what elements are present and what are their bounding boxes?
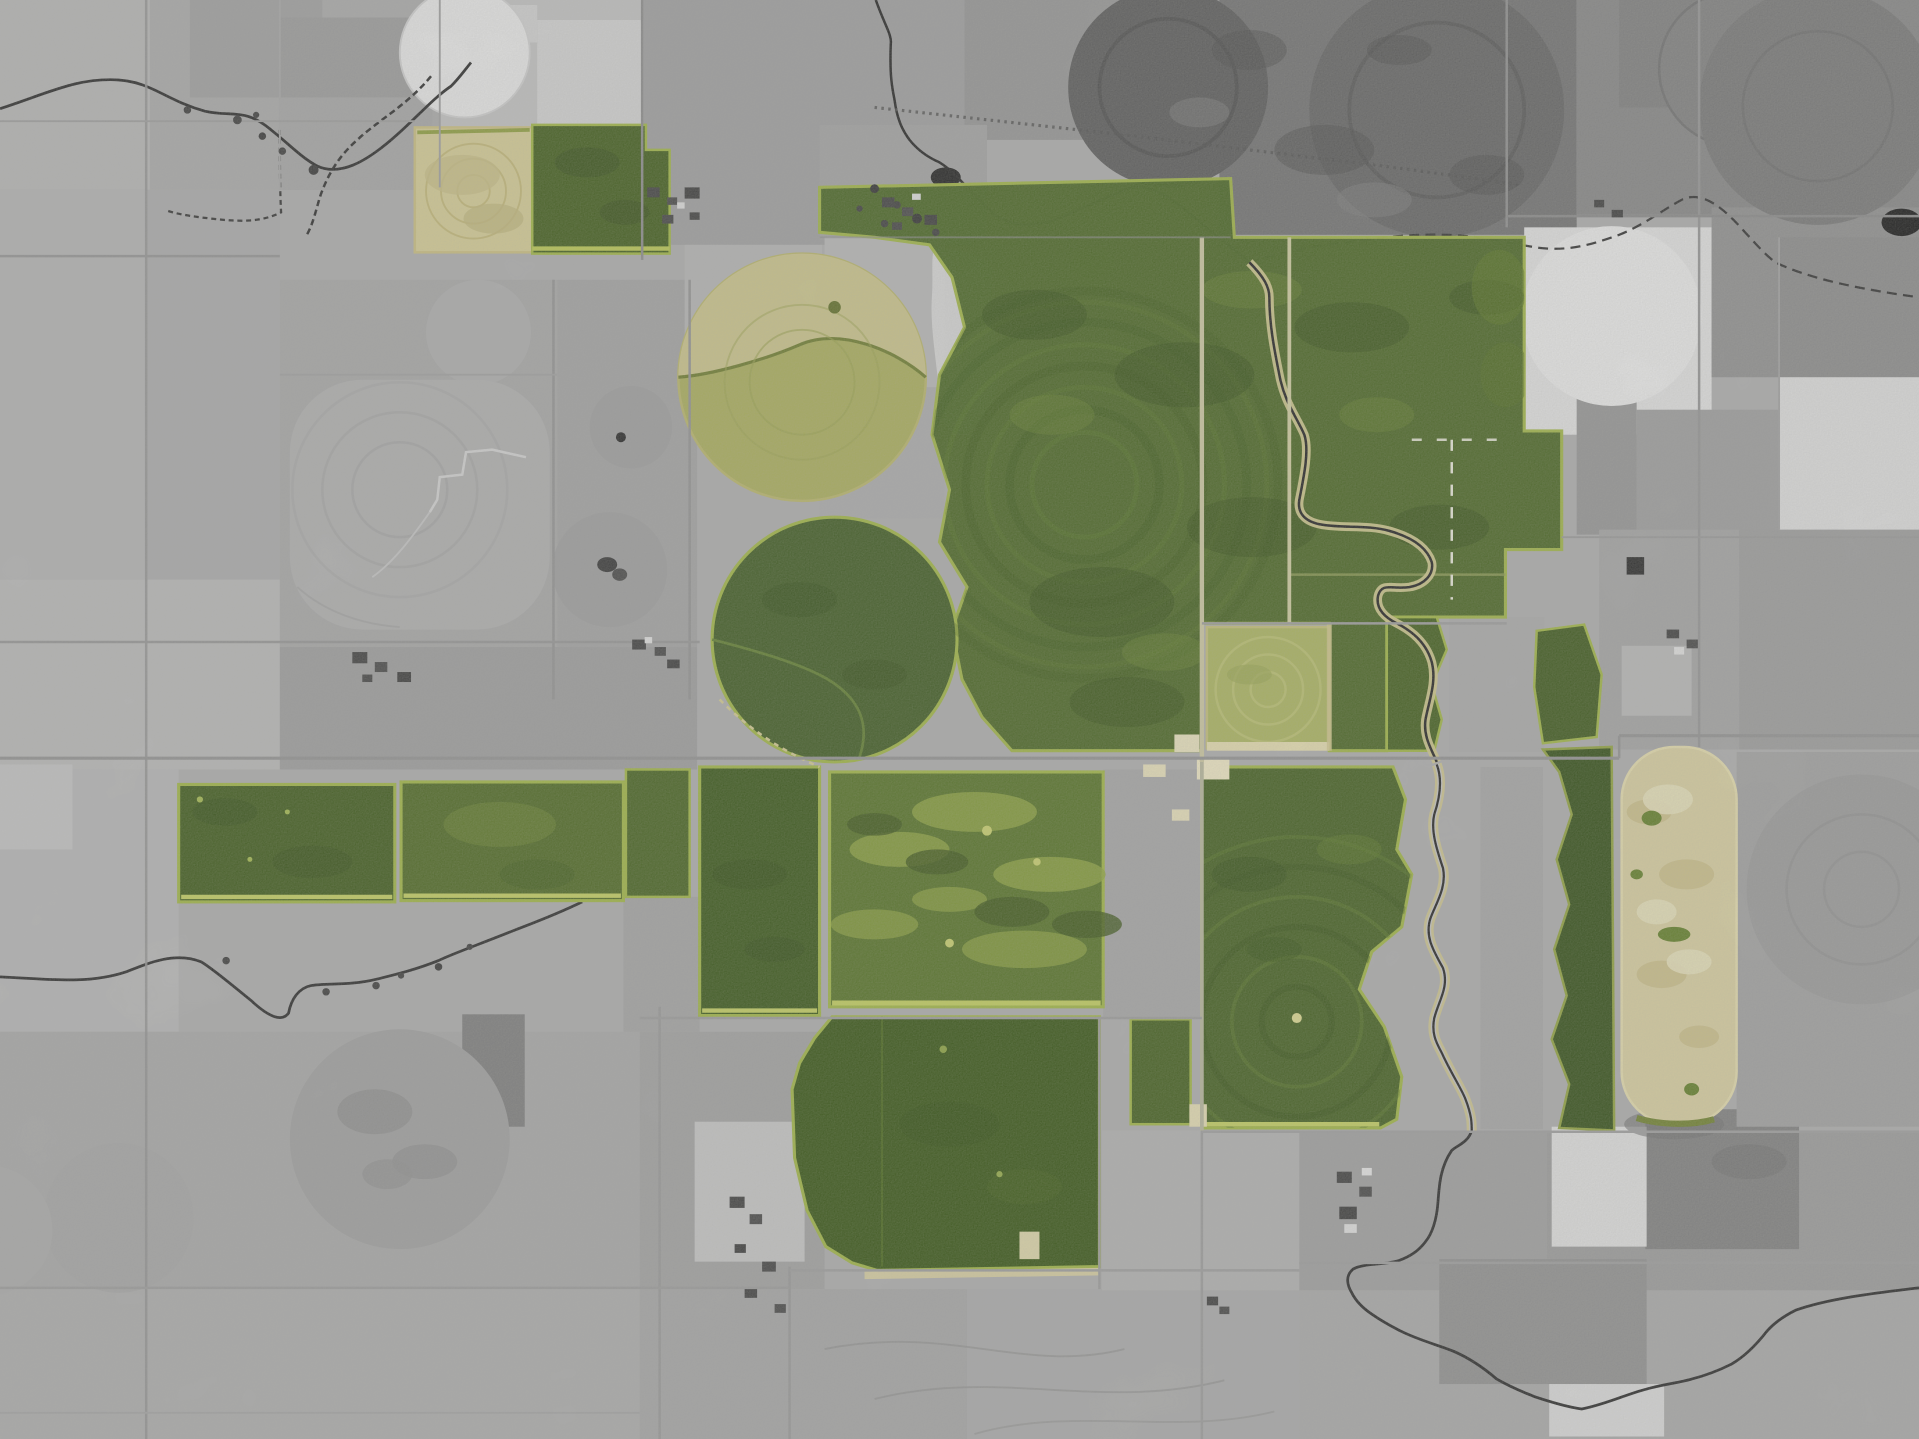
photo-cloud-texture bbox=[0, 0, 1919, 1439]
satellite-map-image bbox=[0, 0, 1919, 1439]
satellite-map-stage bbox=[0, 0, 1919, 1439]
